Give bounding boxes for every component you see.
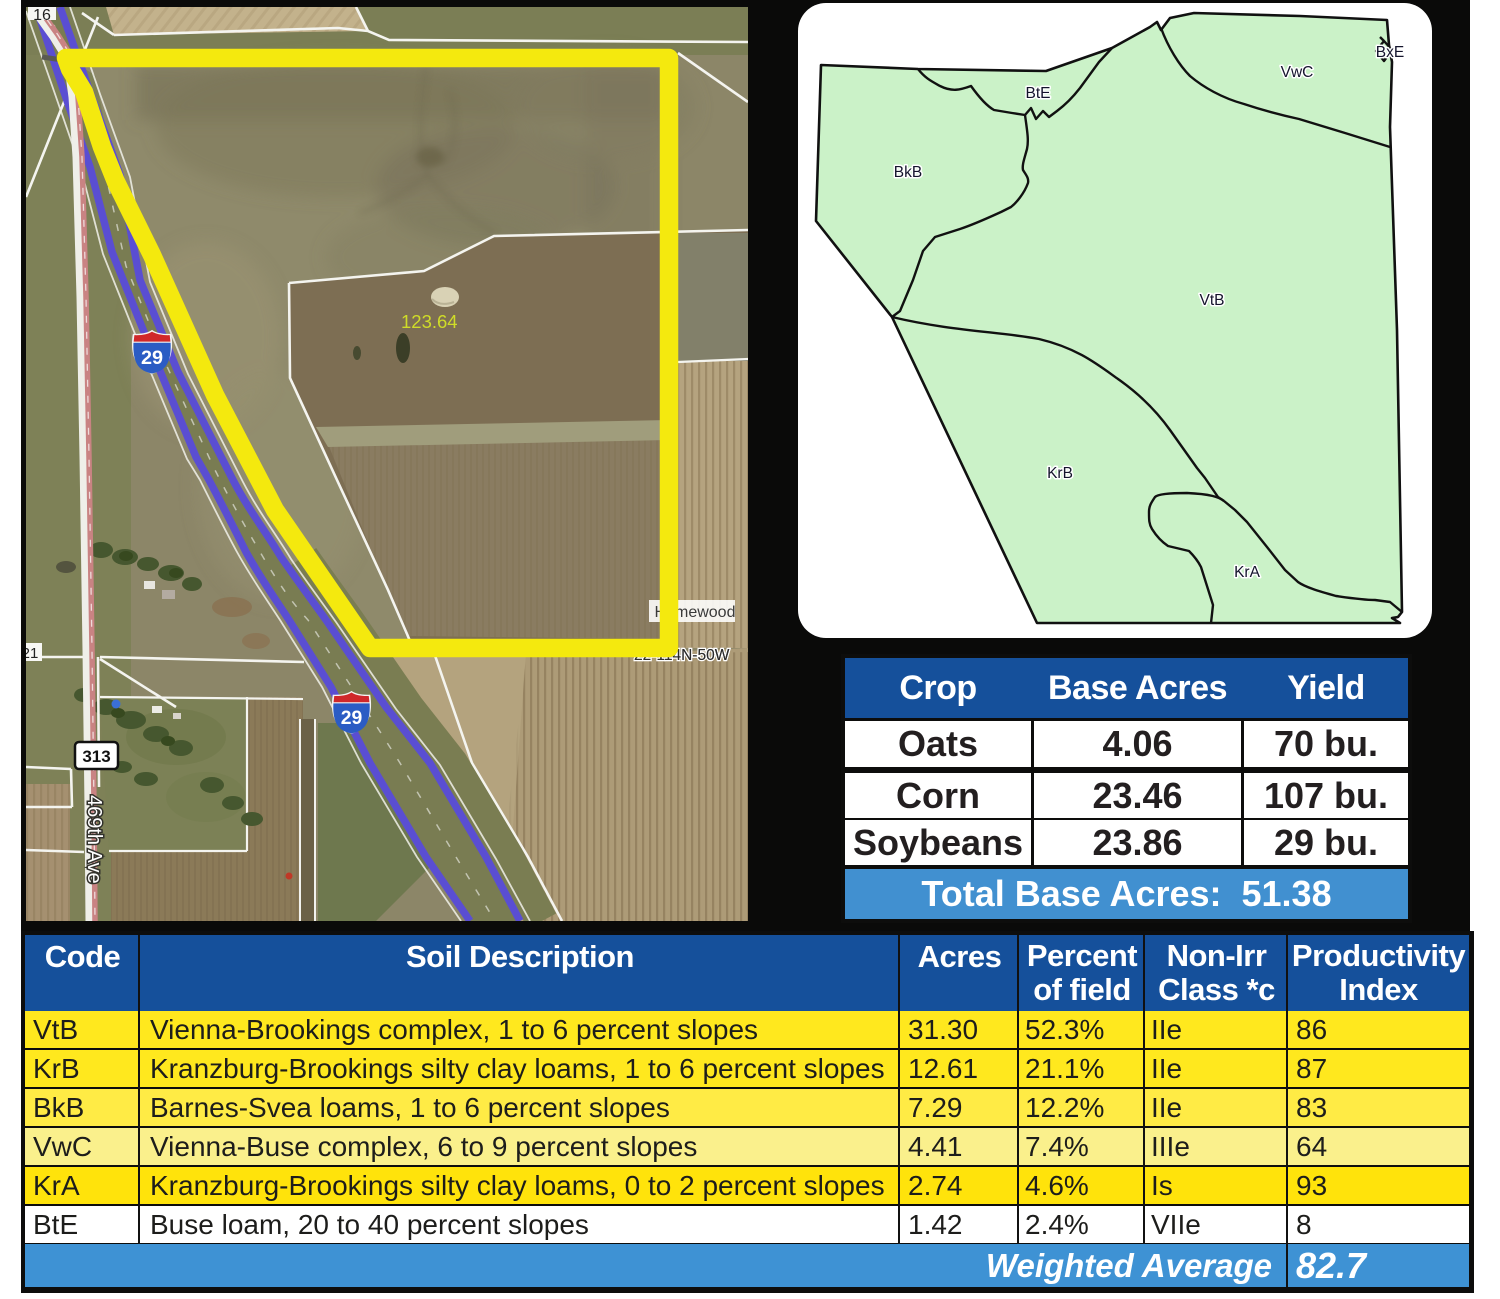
svg-text:469th Ave: 469th Ave <box>83 795 105 884</box>
svg-text:16: 16 <box>33 7 51 24</box>
svg-text:VtB: VtB <box>1200 292 1225 309</box>
svg-text:KrB: KrB <box>1047 465 1073 482</box>
svg-text:21: 21 <box>26 645 38 662</box>
svg-text:VwC: VwC <box>1281 64 1314 81</box>
svg-text:BkB: BkB <box>894 164 922 181</box>
svg-text:BxE: BxE <box>1376 44 1404 61</box>
svg-text:BtE: BtE <box>1026 85 1051 102</box>
svg-text:KrA: KrA <box>1234 564 1261 581</box>
svg-text:123.64: 123.64 <box>401 311 458 332</box>
svg-text:29: 29 <box>141 347 163 369</box>
svg-text:313: 313 <box>82 747 110 766</box>
svg-text:29: 29 <box>341 707 363 729</box>
